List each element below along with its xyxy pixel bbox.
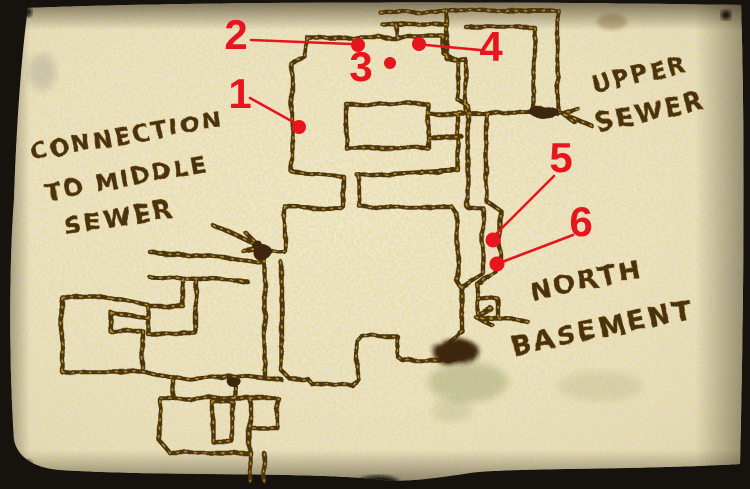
marker-4-number: 4 (479, 23, 503, 70)
connection-arrowhead-blob (253, 241, 263, 251)
ink-blob-maze (226, 376, 240, 386)
marker-5-dot (486, 233, 501, 248)
tack-top-right (721, 10, 731, 20)
marker-3-number: 3 (349, 43, 372, 90)
ink-blob-smudge-core (440, 348, 464, 364)
marker-5-number: 5 (549, 134, 572, 181)
stain-green-right (558, 371, 642, 401)
marker-3-dot (384, 57, 396, 69)
map-photo: CONNECTION TO MIDDLE SEWER UPPER SEWER N… (0, 0, 750, 489)
marker-4-dot (412, 37, 426, 51)
marker-2-number: 2 (224, 11, 247, 58)
ink-blob-upper-junction (529, 106, 559, 118)
stain-grey-topleft (28, 54, 56, 90)
marker-1-dot (292, 120, 306, 134)
stain-green-small (432, 398, 472, 422)
marker-6-dot (490, 257, 505, 272)
marker-6-number: 6 (569, 198, 592, 245)
stain-green-large (428, 362, 508, 402)
marker-1-number: 1 (228, 70, 251, 117)
